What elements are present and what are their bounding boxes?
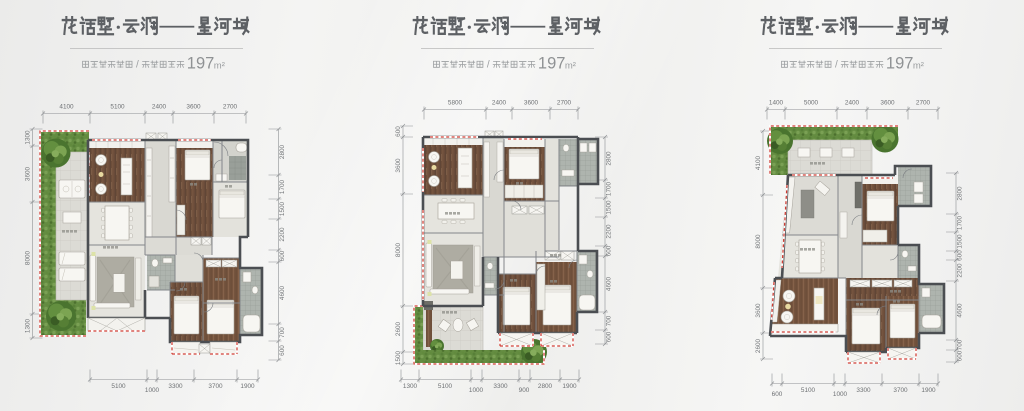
svg-text:2400: 2400 xyxy=(152,104,167,111)
svg-text:2800: 2800 xyxy=(279,144,286,159)
svg-text:1000: 1000 xyxy=(833,391,848,398)
svg-text:197: 197 xyxy=(886,55,914,73)
svg-text:3700: 3700 xyxy=(893,387,908,394)
svg-text:8000: 8000 xyxy=(25,250,32,265)
svg-text:5100: 5100 xyxy=(801,387,816,394)
svg-text:1700: 1700 xyxy=(606,181,613,196)
svg-text:m²: m² xyxy=(913,61,924,72)
svg-text:700: 700 xyxy=(957,339,964,350)
svg-text:1300: 1300 xyxy=(403,383,418,390)
svg-text:1500: 1500 xyxy=(279,201,286,216)
svg-text:3300: 3300 xyxy=(856,387,871,394)
svg-text:5800: 5800 xyxy=(448,100,463,107)
svg-text:3600: 3600 xyxy=(186,104,201,111)
svg-text:/: / xyxy=(835,60,838,71)
svg-text:4600: 4600 xyxy=(606,276,613,291)
svg-text:2600: 2600 xyxy=(395,321,402,336)
svg-text:700: 700 xyxy=(279,327,286,338)
svg-text:3600: 3600 xyxy=(25,166,32,181)
svg-text:1000: 1000 xyxy=(145,387,160,394)
svg-text:2400: 2400 xyxy=(845,100,860,107)
svg-text:/: / xyxy=(136,60,139,71)
svg-text:2600: 2600 xyxy=(755,338,762,353)
svg-text:600: 600 xyxy=(279,250,286,261)
svg-text:1500: 1500 xyxy=(395,350,402,365)
svg-text:2200: 2200 xyxy=(279,227,286,242)
svg-text:2700: 2700 xyxy=(223,104,238,111)
svg-text:4100: 4100 xyxy=(59,104,74,111)
svg-text:3300: 3300 xyxy=(168,383,183,390)
svg-text:3600: 3600 xyxy=(880,100,895,107)
svg-text:5100: 5100 xyxy=(111,383,126,390)
svg-text:600: 600 xyxy=(606,331,613,342)
svg-text:1500: 1500 xyxy=(957,234,964,249)
svg-text:5000: 5000 xyxy=(804,100,819,107)
svg-text:3700: 3700 xyxy=(208,383,223,390)
svg-text:600: 600 xyxy=(395,126,402,137)
svg-text:3600: 3600 xyxy=(395,158,402,173)
svg-text:m²: m² xyxy=(214,61,225,72)
svg-text:1300: 1300 xyxy=(25,130,32,145)
svg-text:m²: m² xyxy=(565,61,576,72)
svg-text:600: 600 xyxy=(279,345,286,356)
svg-text:900: 900 xyxy=(519,387,530,394)
svg-text:4100: 4100 xyxy=(755,155,762,170)
svg-text:8000: 8000 xyxy=(755,234,762,249)
svg-text:1900: 1900 xyxy=(562,383,577,390)
svg-text:2700: 2700 xyxy=(557,100,572,107)
svg-text:3600: 3600 xyxy=(524,100,539,107)
svg-text:1700: 1700 xyxy=(279,179,286,194)
svg-text:600: 600 xyxy=(957,250,964,261)
svg-text:5100: 5100 xyxy=(438,383,453,390)
svg-text:3300: 3300 xyxy=(493,383,508,390)
svg-text:2800: 2800 xyxy=(606,151,613,166)
svg-text:2200: 2200 xyxy=(957,263,964,278)
svg-text:600: 600 xyxy=(606,245,613,256)
svg-text:2800: 2800 xyxy=(538,383,553,390)
svg-text:3600: 3600 xyxy=(755,303,762,318)
svg-text:1900: 1900 xyxy=(921,387,936,394)
svg-text:4600: 4600 xyxy=(279,285,286,300)
svg-text:197: 197 xyxy=(538,55,566,73)
svg-text:1700: 1700 xyxy=(957,215,964,230)
svg-text:2800: 2800 xyxy=(957,186,964,201)
svg-text:2400: 2400 xyxy=(492,100,507,107)
svg-text:1300: 1300 xyxy=(25,318,32,333)
svg-text:1400: 1400 xyxy=(769,100,784,107)
svg-text:197: 197 xyxy=(187,55,215,73)
svg-text:2700: 2700 xyxy=(916,100,931,107)
svg-text:/: / xyxy=(487,60,490,71)
svg-text:2200: 2200 xyxy=(606,224,613,239)
svg-text:600: 600 xyxy=(772,391,783,398)
svg-text:600: 600 xyxy=(957,350,964,361)
svg-text:700: 700 xyxy=(606,315,613,326)
svg-text:1500: 1500 xyxy=(606,200,613,215)
svg-text:4600: 4600 xyxy=(957,303,964,318)
svg-text:8000: 8000 xyxy=(395,242,402,257)
svg-text:1000: 1000 xyxy=(469,387,484,394)
svg-text:1900: 1900 xyxy=(240,383,255,390)
svg-text:5100: 5100 xyxy=(110,104,125,111)
